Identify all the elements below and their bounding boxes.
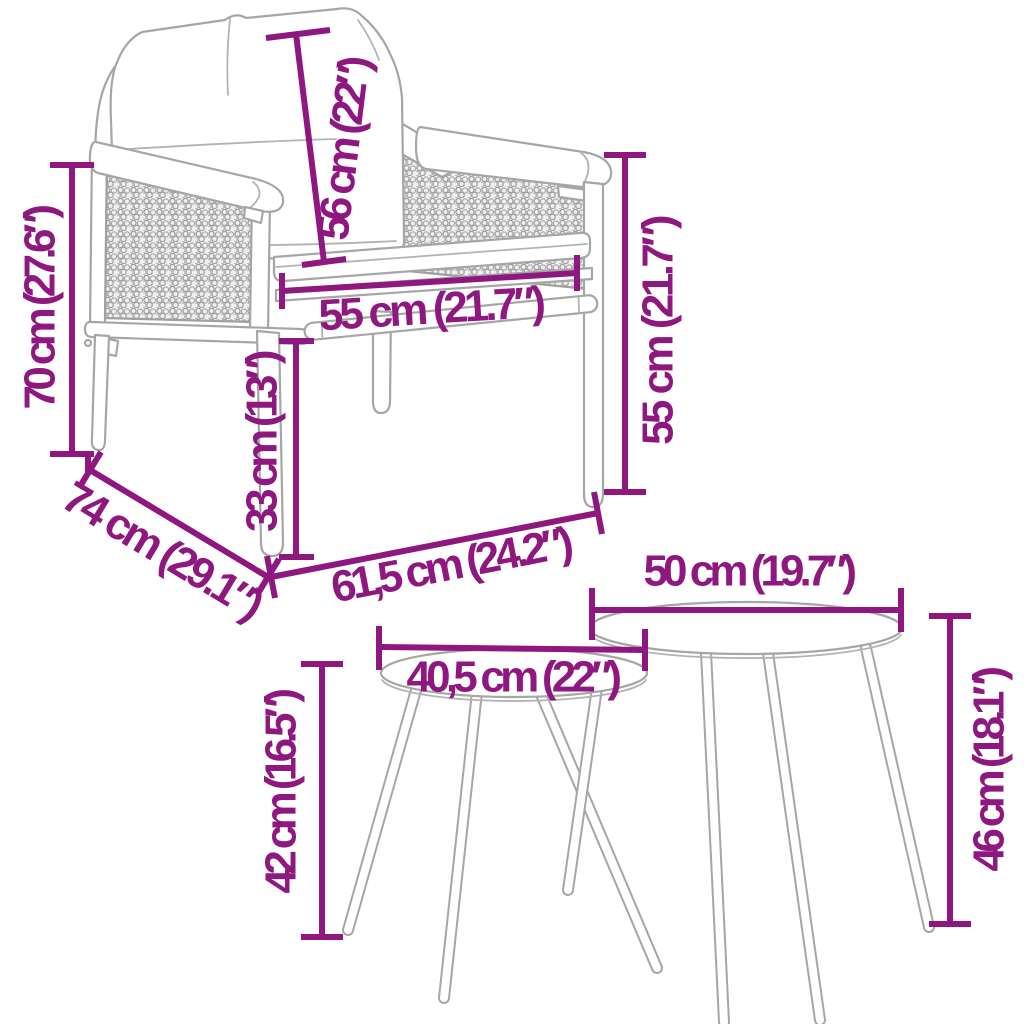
dim-label-large-table-height: 46 cm (18.1″) (965, 667, 1014, 872)
dim-label-small-table-diameter: 40,5 cm (22″) (407, 653, 622, 702)
dim-seat-height: 33 cm (13″) (238, 341, 315, 557)
dim-chair-width: 61,5 cm (24.2″) (267, 492, 602, 612)
dim-chair-height: 70 cm (27.6″) (16, 165, 95, 474)
dim-label-large-table-diameter: 50 cm (19.7″) (644, 547, 857, 596)
chair-leg-rear-left (92, 335, 109, 450)
product-dimension-diagram: 70 cm (27.6″) 56 cm (22″) 55 cm (21.7″) … (0, 0, 1024, 1024)
dim-label-backrest-height: 55 cm (21.7″) (634, 215, 683, 445)
dim-label-small-table-height: 42 cm (16.5″) (257, 689, 306, 894)
dim-label-seat-height: 33 cm (13″) (238, 350, 287, 532)
dim-backrest-height: 55 cm (21.7″) (604, 155, 683, 492)
dim-label-chair-height: 70 cm (27.6″) (16, 205, 65, 410)
dim-large-table-height: 46 cm (18.1″) (929, 616, 1014, 924)
diagram-canvas: 70 cm (27.6″) 56 cm (22″) 55 cm (21.7″) … (0, 0, 1024, 1024)
dim-small-table-height: 42 cm (16.5″) (257, 664, 344, 937)
chair-leg-front-right (584, 182, 603, 507)
dim-label-chair-width: 61,5 cm (24.2″) (327, 518, 577, 613)
